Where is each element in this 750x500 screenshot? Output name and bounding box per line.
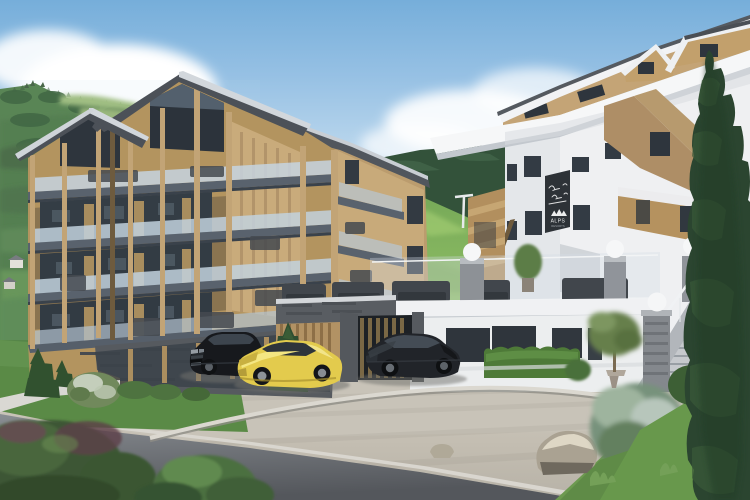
svg-text:RESORTS: RESORTS [551, 224, 565, 228]
